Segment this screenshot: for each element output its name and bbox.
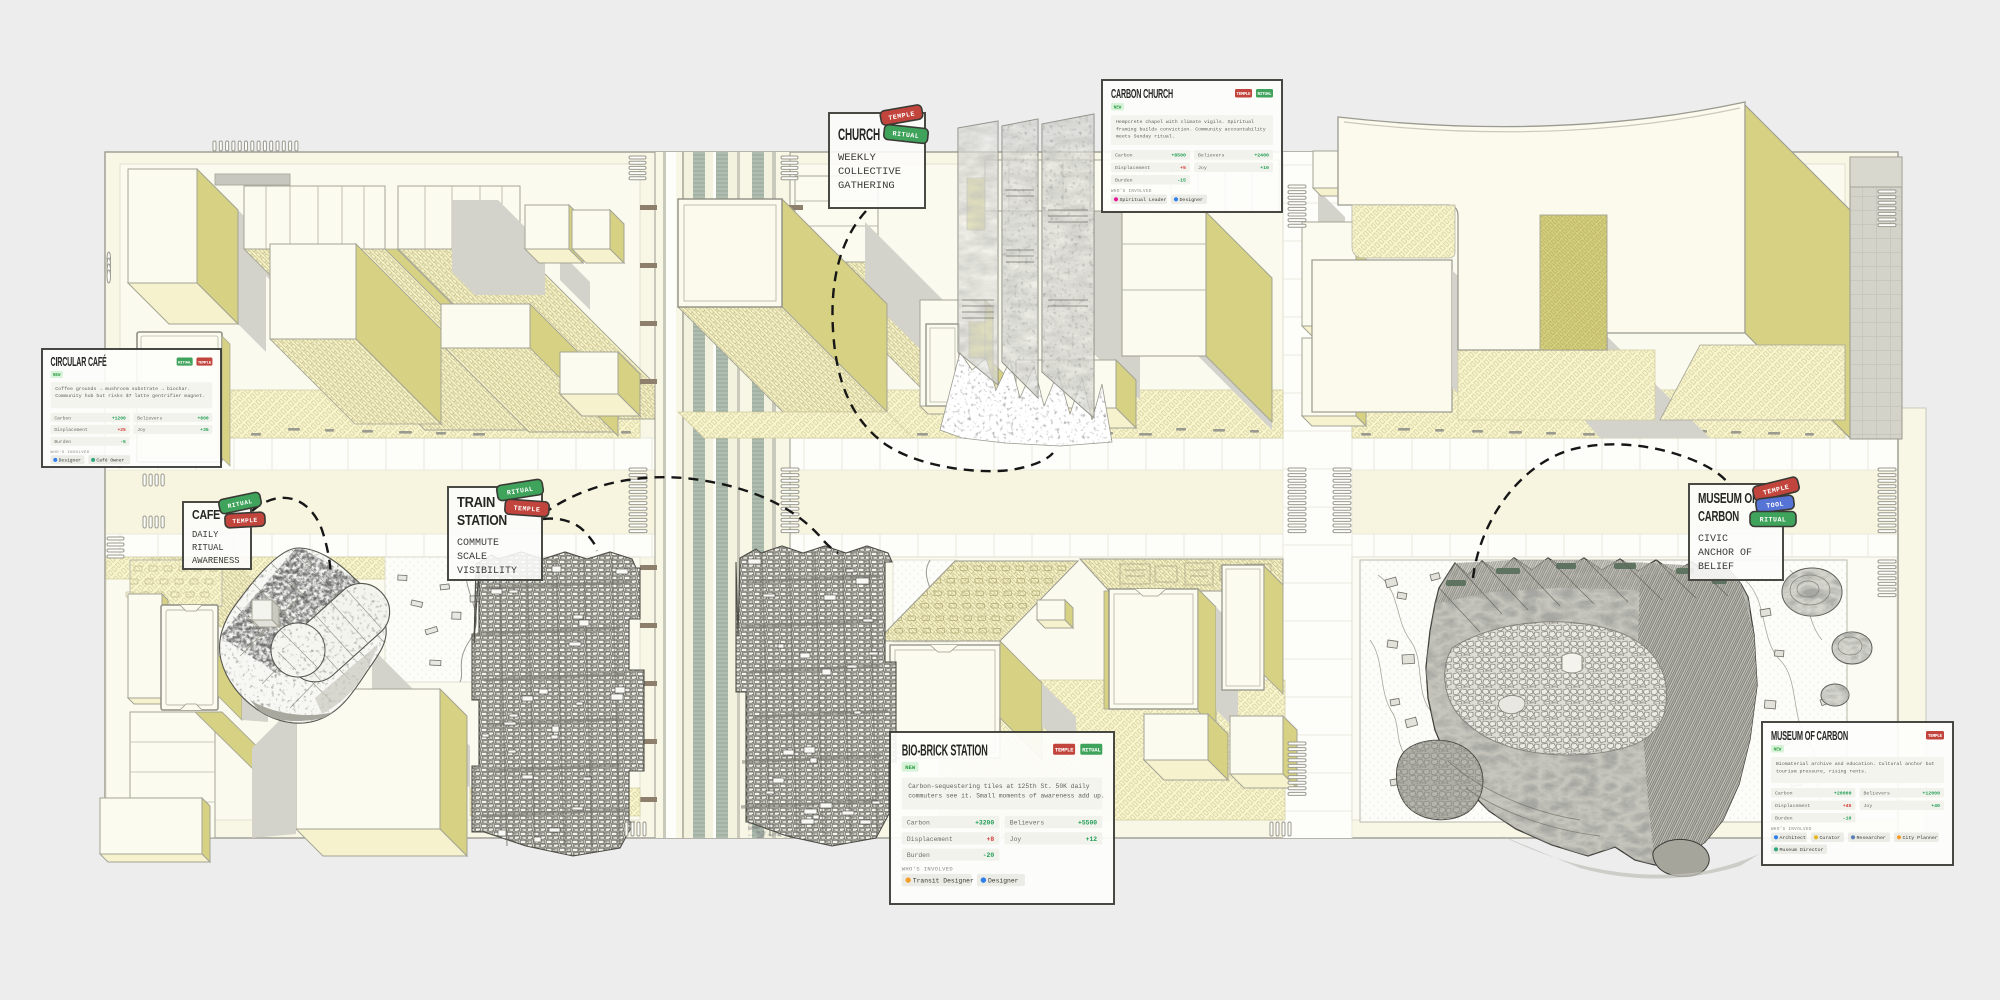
svg-text:TEMPLE: TEMPLE — [1237, 93, 1252, 97]
svg-text:RITUAL: RITUAL — [1760, 517, 1787, 524]
svg-text:+45: +45 — [1843, 803, 1852, 809]
svg-text:AWARENESS: AWARENESS — [192, 556, 240, 566]
svg-text:Burden: Burden — [54, 439, 71, 445]
svg-text:WHO'S INVOLVED: WHO'S INVOLVED — [902, 866, 953, 873]
svg-text:RITUAL: RITUAL — [192, 543, 224, 553]
svg-text:Burden: Burden — [907, 852, 930, 859]
svg-text:meets Sunday ritual.: meets Sunday ritual. — [1116, 134, 1175, 140]
svg-text:-10: -10 — [1843, 816, 1852, 822]
svg-text:Believers: Believers — [137, 415, 162, 421]
svg-text:CARBON: CARBON — [1698, 509, 1739, 525]
svg-text:-20: -20 — [983, 852, 995, 859]
svg-text:Joy: Joy — [1198, 165, 1207, 171]
svg-text:+5500: +5500 — [1078, 820, 1097, 827]
svg-text:Displacement: Displacement — [907, 836, 953, 843]
svg-text:WHO'S INVOLVED: WHO'S INVOLVED — [51, 450, 90, 455]
svg-text:Carbon: Carbon — [1115, 153, 1133, 159]
svg-text:CIRCULAR CAFÉ: CIRCULAR CAFÉ — [51, 354, 107, 369]
svg-text:GATHERING: GATHERING — [838, 180, 895, 192]
svg-text:tourism pressure, rising rents: tourism pressure, rising rents. — [1776, 768, 1867, 774]
svg-text:-5: -5 — [120, 439, 126, 445]
svg-text:Designer: Designer — [1180, 197, 1204, 203]
svg-text:+35: +35 — [200, 427, 209, 433]
svg-text:NEW: NEW — [1114, 106, 1122, 111]
svg-text:Designer: Designer — [59, 458, 81, 464]
svg-text:RITUAL: RITUAL — [1258, 93, 1273, 97]
svg-text:Spiritual Leader: Spiritual Leader — [1120, 197, 1167, 203]
svg-text:City Planner: City Planner — [1903, 835, 1938, 841]
svg-text:+12000: +12000 — [1922, 791, 1940, 797]
svg-text:Displacement: Displacement — [1115, 165, 1150, 171]
svg-text:+5: +5 — [1180, 165, 1186, 171]
svg-text:CHURCH: CHURCH — [838, 125, 880, 144]
svg-text:Researcher: Researcher — [1857, 835, 1886, 841]
svg-text:+10: +10 — [1260, 165, 1269, 171]
svg-text:CARBON CHURCH: CARBON CHURCH — [1111, 86, 1173, 101]
svg-text:Carbon: Carbon — [54, 415, 71, 421]
svg-text:Joy: Joy — [1010, 836, 1022, 843]
svg-text:+8: +8 — [987, 836, 995, 843]
svg-text:+800: +800 — [198, 415, 209, 421]
svg-text:WHO'S INVOLVED: WHO'S INVOLVED — [1111, 189, 1152, 194]
svg-text:+40: +40 — [1931, 803, 1940, 809]
svg-text:Believers: Believers — [1198, 153, 1224, 159]
svg-text:+2400: +2400 — [1254, 153, 1269, 159]
svg-text:COLLECTIVE: COLLECTIVE — [838, 166, 901, 178]
svg-text:TEMPLE: TEMPLE — [1055, 747, 1074, 754]
svg-text:RITUAL: RITUAL — [1082, 747, 1100, 754]
svg-text:Museum Director: Museum Director — [1780, 847, 1824, 853]
svg-text:WEEKLY: WEEKLY — [838, 152, 877, 164]
svg-text:RITUAL: RITUAL — [178, 361, 192, 365]
svg-text:Biomaterial archive and educat: Biomaterial archive and education. Cultu… — [1776, 761, 1935, 767]
svg-text:Displacement: Displacement — [1775, 803, 1810, 809]
svg-text:NEW: NEW — [1774, 748, 1782, 753]
svg-text:Joy: Joy — [137, 427, 146, 433]
svg-text:CAFE: CAFE — [192, 507, 221, 522]
svg-text:Burden: Burden — [1775, 816, 1793, 822]
svg-text:commuters see it. Small moment: commuters see it. Small moments of aware… — [908, 792, 1104, 799]
svg-text:+12: +12 — [1086, 836, 1098, 843]
svg-text:COMMUTE: COMMUTE — [457, 538, 499, 549]
svg-text:Believers: Believers — [1010, 820, 1045, 827]
svg-text:+1200: +1200 — [112, 415, 126, 421]
svg-text:Hempcrete chapel with climate: Hempcrete chapel with climate vigils. Sp… — [1116, 119, 1254, 125]
svg-text:Café Owner: Café Owner — [96, 458, 124, 464]
svg-text:Designer: Designer — [988, 877, 1019, 884]
svg-text:TEMPLE: TEMPLE — [232, 517, 258, 525]
svg-text:Displacement: Displacement — [54, 427, 88, 433]
svg-text:Coffee grounds → mushroom subs: Coffee grounds → mushroom substrate → bi… — [55, 386, 190, 392]
svg-text:+20000: +20000 — [1834, 791, 1852, 797]
svg-text:MUSEUM OF: MUSEUM OF — [1698, 491, 1758, 507]
svg-text:Architect: Architect — [1780, 835, 1806, 841]
svg-text:NEW: NEW — [53, 374, 61, 378]
svg-text:+3200: +3200 — [975, 820, 994, 827]
svg-text:NEW: NEW — [905, 764, 916, 771]
svg-text:Community hub but risks $7 lat: Community hub but risks $7 latte gentrif… — [55, 393, 205, 399]
svg-text:DAILY: DAILY — [192, 530, 219, 540]
svg-text:CIVIC: CIVIC — [1698, 534, 1728, 545]
svg-text:+25: +25 — [117, 427, 126, 433]
svg-text:MUSEUM OF CARBON: MUSEUM OF CARBON — [1771, 728, 1848, 743]
svg-text:TEMPLE: TEMPLE — [198, 361, 212, 365]
svg-text:+8500: +8500 — [1171, 153, 1186, 159]
svg-text:Carbon: Carbon — [1775, 791, 1793, 797]
svg-text:Curator: Curator — [1820, 835, 1841, 841]
svg-text:BIO-BRICK STATION: BIO-BRICK STATION — [902, 742, 988, 759]
svg-text:VISIBILITY: VISIBILITY — [457, 566, 517, 577]
svg-text:WHO'S INVOLVED: WHO'S INVOLVED — [1771, 827, 1812, 832]
svg-text:TEMPLE: TEMPLE — [1928, 735, 1943, 739]
svg-text:ANCHOR OF: ANCHOR OF — [1698, 548, 1752, 559]
svg-text:SCALE: SCALE — [457, 552, 487, 563]
svg-text:BELIEF: BELIEF — [1698, 562, 1734, 573]
svg-text:Believers: Believers — [1864, 791, 1890, 797]
svg-text:framing builds conviction. Com: framing builds conviction. Community acc… — [1116, 126, 1266, 132]
svg-text:Carbon: Carbon — [907, 820, 930, 827]
svg-text:Transit Designer: Transit Designer — [913, 877, 974, 884]
svg-text:TRAIN: TRAIN — [457, 495, 495, 511]
svg-text:Joy: Joy — [1864, 803, 1873, 809]
svg-text:Carbon-sequestering tiles at 1: Carbon-sequestering tiles at 125th St. 5… — [908, 783, 1090, 790]
svg-text:STATION: STATION — [457, 513, 507, 529]
svg-text:Burden: Burden — [1115, 178, 1133, 184]
svg-text:-15: -15 — [1177, 178, 1186, 184]
